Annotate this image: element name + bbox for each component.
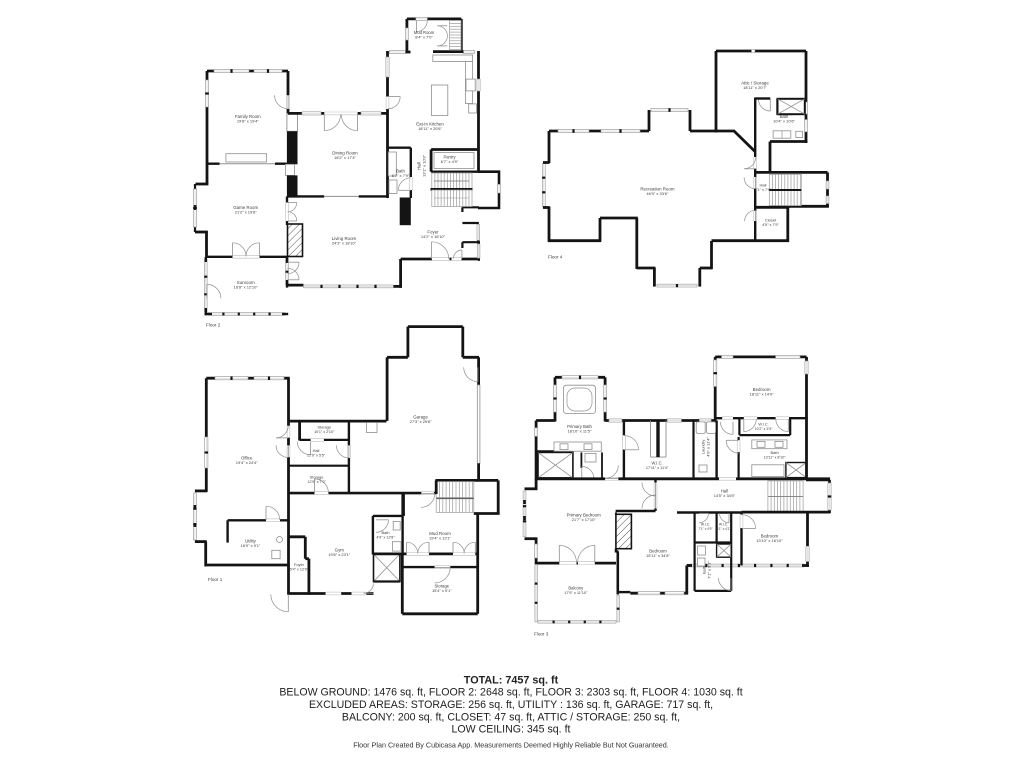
svg-text:18'11" x 20'6": 18'11" x 20'6": [418, 126, 442, 131]
svg-text:16'9" x 9'1": 16'9" x 9'1": [241, 543, 261, 548]
svg-text:7'1" x 9'3": 7'1" x 9'3": [707, 561, 712, 579]
svg-text:7'1" x 4'9": 7'1" x 4'9": [699, 527, 713, 531]
svg-text:Hall: Hall: [313, 448, 320, 453]
svg-text:7'1" x 7'9": 7'1" x 7'9": [755, 188, 772, 192]
svg-text:46'9" x 33'6": 46'9" x 33'6": [646, 191, 669, 196]
svg-text:18'10" x 11'5": 18'10" x 11'5": [568, 429, 592, 434]
svg-text:Floor 1: Floor 1: [208, 577, 223, 582]
svg-text:W.I.C.: W.I.C.: [652, 461, 663, 466]
svg-text:18'11" x 20'7": 18'11" x 20'7": [743, 85, 767, 90]
svg-text:Floor 3: Floor 3: [534, 632, 549, 637]
svg-text:6'1" x 4'1": 6'1" x 4'1": [717, 527, 731, 531]
svg-text:Bath: Bath: [770, 450, 778, 455]
svg-text:13'10" x 16'10": 13'10" x 16'10": [756, 538, 783, 543]
svg-text:Hall: Hall: [760, 183, 767, 188]
svg-text:13'11" x 8'10": 13'11" x 8'10": [764, 456, 787, 460]
svg-text:LOW CEILING: 345 sq. ft: LOW CEILING: 345 sq. ft: [452, 724, 571, 736]
svg-text:21'2" x 19'8": 21'2" x 19'8": [235, 210, 258, 215]
svg-text:17'11" x 11'4": 17'11" x 11'4": [646, 466, 669, 470]
svg-text:6'7" x 7'9": 6'7" x 7'9": [392, 173, 410, 178]
svg-text:19'6" x 23'1": 19'6" x 23'1": [328, 552, 351, 557]
svg-text:8'4" x 7'0": 8'4" x 7'0": [415, 35, 433, 40]
svg-text:14'5" x 34'5": 14'5" x 34'5": [714, 493, 736, 498]
svg-text:19'4" x 24'4": 19'4" x 24'4": [236, 460, 259, 465]
svg-text:19'4" x 12'1": 19'4" x 12'1": [429, 536, 452, 541]
svg-text:14'2" x 16'10": 14'2" x 16'10": [421, 234, 446, 239]
svg-text:13'1" x 10'9": 13'1" x 10'9": [422, 154, 427, 177]
svg-text:W.I.C.: W.I.C.: [701, 523, 710, 527]
svg-text:5'4" x 12'9": 5'4" x 12'9": [290, 568, 309, 572]
svg-text:18'11" x 14'9": 18'11" x 14'9": [750, 392, 774, 397]
svg-text:BALCONY: 200 sq. ft, CLOSET: 4: BALCONY: 200 sq. ft, CLOSET: 47 sq. ft, …: [342, 711, 680, 723]
svg-text:12'9" x 5'5": 12'9" x 5'5": [307, 454, 326, 458]
svg-text:19'8" x 19'4": 19'8" x 19'4": [237, 119, 260, 124]
svg-text:6'7" x 4'9": 6'7" x 4'9": [441, 159, 459, 164]
svg-text:21'7" x 17'10": 21'7" x 17'10": [572, 517, 597, 522]
svg-text:Floor 4: Floor 4: [548, 255, 563, 260]
svg-text:17'9" x 11'10": 17'9" x 11'10": [564, 590, 588, 595]
svg-text:TOTAL: 7457 sq. ft: TOTAL: 7457 sq. ft: [464, 675, 559, 687]
svg-text:Closet: Closet: [765, 218, 777, 223]
svg-text:4'9" x 12'8": 4'9" x 12'8": [376, 536, 395, 540]
svg-text:4'9" x 11'4": 4'9" x 11'4": [706, 437, 711, 457]
svg-text:Storage: Storage: [317, 425, 331, 430]
svg-text:W.I.C.: W.I.C.: [719, 523, 728, 527]
svg-text:27'3" x 29'8": 27'3" x 29'8": [410, 419, 433, 424]
svg-text:24'3" x 18'10": 24'3" x 18'10": [332, 241, 357, 246]
svg-text:15'4" x 9'1": 15'4" x 9'1": [432, 588, 452, 593]
svg-text:W.I.C.: W.I.C.: [758, 423, 768, 427]
svg-text:10'1" x 2'10": 10'1" x 2'10": [314, 430, 335, 434]
svg-text:EXCLUDED AREAS: STORAGE: 256 s: EXCLUDED AREAS: STORAGE: 256 sq. ft, UTI…: [309, 699, 713, 711]
svg-text:10'4" x 10'6": 10'4" x 10'6": [773, 119, 796, 124]
svg-text:18'2" x 17'4": 18'2" x 17'4": [334, 155, 357, 160]
svg-text:Floor Plan Created By Cubicasa: Floor Plan Created By Cubicasa App. Meas…: [353, 740, 669, 749]
svg-text:BELOW GROUND: 1476 sq. ft, FLO: BELOW GROUND: 1476 sq. ft, FLOOR 2: 2648…: [279, 687, 742, 699]
svg-text:10'2" x 3'9": 10'2" x 3'9": [755, 427, 773, 431]
svg-text:15'11" x 34'8": 15'11" x 34'8": [646, 553, 670, 558]
svg-text:Foyer: Foyer: [294, 562, 305, 567]
svg-text:4'5" x 7'9": 4'5" x 7'9": [762, 223, 779, 227]
svg-text:16'8" x 12'10": 16'8" x 12'10": [234, 285, 259, 290]
svg-text:Floor 2: Floor 2: [206, 323, 221, 328]
